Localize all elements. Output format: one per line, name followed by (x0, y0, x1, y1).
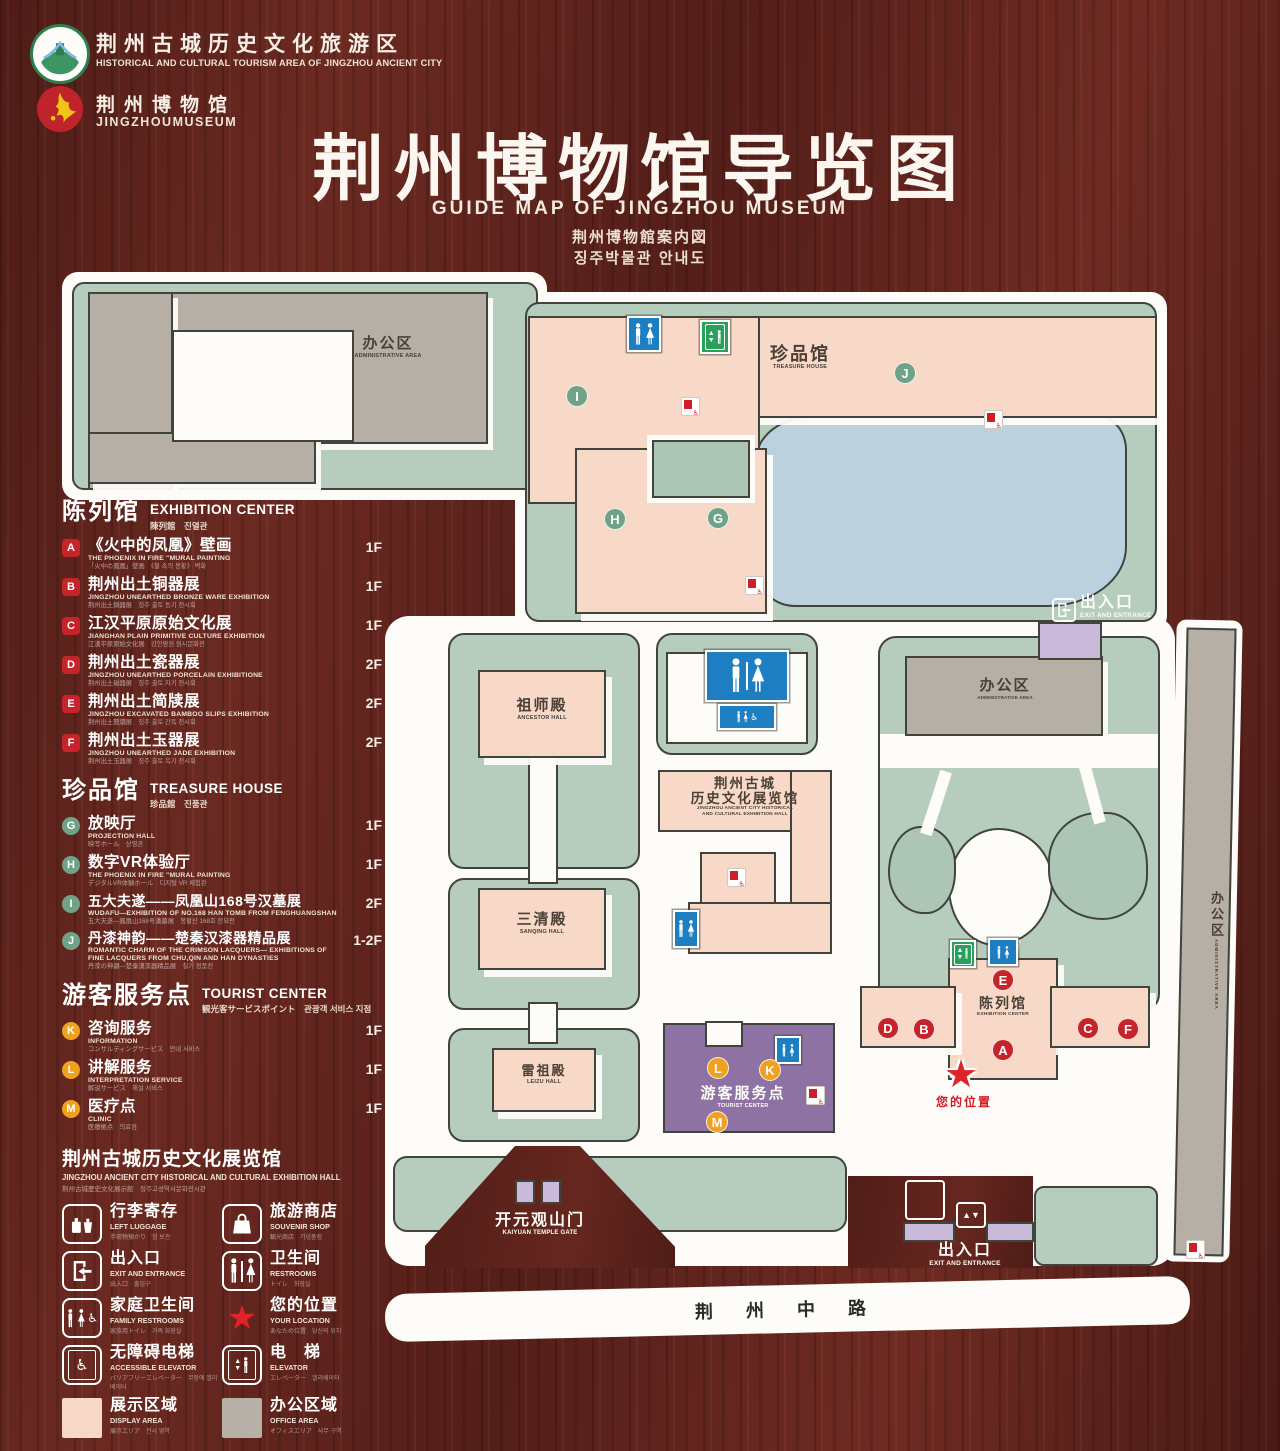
legend-item-K: K 咨询服务 INFORMATION コンサルティングサービス 안내 서비스 1… (62, 1021, 382, 1054)
garden-path-horizontal (880, 734, 1158, 768)
badge-K: K (62, 1022, 80, 1040)
your-location-icon: ★ (222, 1298, 262, 1338)
exit-north-label: 出入口 EXIT AND ENTRANCE (1080, 594, 1200, 619)
restroom-sign-central (705, 650, 789, 702)
map-marker-J: J (894, 362, 916, 384)
badge-C: C (62, 617, 80, 635)
section-tourist-center: 游客服务点 TOURIST CENTER 観光客サービスポイント 관광객 서비스… (62, 984, 382, 1016)
map-marker-C: C (1077, 1017, 1099, 1039)
tourism-logo-title: 荆州古城历史文化旅游区 (96, 28, 404, 58)
restroom-sign-hist-hall (673, 910, 699, 948)
your-location-label: 您的位置 (922, 1096, 1006, 1109)
floor-A: 1F (346, 538, 382, 555)
legend-item-J: J 丹漆神韵——楚秦汉漆器精品展 ROMANTIC CHARM OF THE C… (62, 931, 382, 970)
red-facility-icon-5 (806, 1086, 825, 1105)
exhibition-center-label: 陈列馆 EXHIBITION CENTER (950, 996, 1056, 1017)
floor-I: 2F (346, 894, 382, 911)
badge-E: E (62, 695, 80, 713)
admin-east-label: 办公区 ADMINISTRATIVE AREA (930, 678, 1080, 700)
badge-B: B (62, 578, 80, 596)
elevator-icon: ▲▼ (222, 1345, 262, 1385)
legend-item-E: E 荆州出土简牍展 JINGZHOU EXCAVATED BAMBOO SLIP… (62, 694, 382, 727)
souvenir-shop-icon (222, 1204, 262, 1244)
red-facility-icon-4 (727, 868, 746, 887)
map-marker-E: E (992, 969, 1014, 991)
restrooms-icon (222, 1251, 262, 1291)
red-facility-icon-2 (984, 410, 1003, 429)
map-marker-G: G (707, 507, 729, 529)
elevator-sign-treasure: ▲▼ (700, 320, 730, 354)
legend-exit-entrance: 出入口 EXIT AND ENTRANCE 出入口 출입구 (62, 1251, 222, 1291)
legend-souvenir-shop: 旅游商店 SOUVENIR SHOP 観光商店 기념품점 (222, 1204, 382, 1244)
floor-H: 1F (346, 855, 382, 872)
south-gate-pad-left (903, 1222, 955, 1242)
badge-G: G (62, 817, 80, 835)
badge-H: H (62, 856, 80, 874)
pond-green-right (1048, 812, 1148, 920)
road-label: 荆 州 中 路 (695, 1294, 881, 1324)
floor-C: 1F (346, 616, 382, 633)
floor-E: 2F (346, 694, 382, 711)
hist-hall-note: 荆州古城历史文化展览馆 JINGZHOU ANCIENT CITY HISTOR… (62, 1144, 382, 1193)
family-restroom-sign-central: ♿ (718, 704, 776, 730)
map-marker-L: L (707, 1057, 729, 1079)
tourist-center-label: 游客服务点 TOURIST CENTER (668, 1086, 818, 1109)
office-area-swatch (222, 1398, 262, 1438)
map-marker-F: F (1117, 1018, 1139, 1040)
floor-B: 1F (346, 577, 382, 594)
legend-item-A: A 《火中的凤凰》壁画 THE PHOENIX IN FIRE "MURAL P… (62, 538, 382, 571)
floor-L: 1F (346, 1060, 382, 1077)
elevator-sign-exhibition: ▲▼ (950, 940, 976, 968)
tourism-logo-subtitle: HISTORICAL AND CULTURAL TOURISM AREA OF … (96, 58, 442, 68)
section-exhibition-center: 陈列馆 EXHIBITION CENTER 陳列館 진열관 (62, 500, 382, 532)
green-inner-court (652, 440, 750, 498)
museum-logo-title: 荆州博物馆 (96, 90, 236, 117)
corridor-sanqing-leizu (528, 1002, 558, 1044)
hist-hall-label: 荆州古城 历史文化展览馆 JINGZHOU ANCIENT CITY HISTO… (662, 776, 828, 817)
legend-elevator: ▲▼ 电 梯 ELEVATOR エレベーター 엘리베이터 (222, 1345, 382, 1391)
badge-D: D (62, 656, 80, 674)
museum-logo-subtitle: JINGZHOUMUSEUM (96, 115, 237, 129)
badge-L: L (62, 1061, 80, 1079)
treasure-house-label: 珍品馆 TREASURE HOUSE (740, 344, 860, 370)
pond-green-left (888, 826, 956, 914)
road-jingzhou-middle: 荆 州 中 路 (385, 1276, 1191, 1342)
leizu-hall-label: 雷祖殿 LEIZU HALL (494, 1064, 594, 1085)
lake (755, 415, 1127, 607)
badge-I: I (62, 895, 80, 913)
left-luggage-icon-map (905, 1180, 945, 1220)
badge-J: J (62, 932, 80, 950)
map-marker-B: B (913, 1018, 935, 1040)
family-restrooms-icon: ♿ (62, 1298, 102, 1338)
display-area-swatch (62, 1398, 102, 1438)
badge-F: F (62, 734, 80, 752)
legend-left-luggage: 行李寄存 LEFT LUGGAGE 手荷物預かり 짐 보관 (62, 1204, 222, 1244)
building-exhibition-right-wing (1050, 986, 1150, 1048)
legend-family-restrooms: ♿ 家庭卫生间 FAMILY RESTROOMS 家族用トイレ 가족 화장실 (62, 1298, 222, 1338)
exit-icon-north (1052, 598, 1076, 622)
section-treasure-house: 珍品馆 TREASURE HOUSE 珍品館 진품관 (62, 779, 382, 811)
museum-logo (37, 86, 83, 132)
floor-F: 2F (346, 733, 382, 750)
accessible-elevator-icon: ♿ (62, 1345, 102, 1385)
restroom-sign-tourist (775, 1036, 801, 1064)
elevator-arrows-icon-map: ▲▼ (956, 1202, 986, 1228)
legend-office-area: 办公区域 OFFICE AREA オフィスエリア 사무 구역 (222, 1398, 382, 1438)
legend-item-C: C 江汉平原原始文化展 JIANGHAN PLAIN PRIMITIVE CUL… (62, 616, 382, 649)
legend-item-H: H 数字VR体验厅 THE PHOENIX IN FIRE "MURAL PAI… (62, 855, 382, 888)
floor-G: 1F (346, 816, 382, 833)
guide-map-sign: 荆州古城历史文化旅游区 HISTORICAL AND CULTURAL TOUR… (0, 0, 1280, 1451)
map-marker-A: A (992, 1039, 1014, 1061)
legend-item-G: G 放映厅 PROJECTION HALL 映写ホール 상영관 1F (62, 816, 382, 849)
legend-your-location: ★ 您的位置 YOUR LOCATION あなたの位置 당신의 위치 (222, 1298, 382, 1338)
legend-sidebar: 陈列馆 EXHIBITION CENTER 陳列館 진열관 A 《火中的凤凰》壁… (62, 500, 382, 1438)
map-marker-K: K (759, 1059, 781, 1081)
tourism-area-logo (30, 24, 90, 84)
red-facility-icon-6 (1186, 1240, 1205, 1259)
legend-accessible-elevator: ♿ 无障碍电梯 ACCESSIBLE ELEVATOR バリアフリーエレベーター… (62, 1345, 222, 1391)
building-exhibition-left-wing (860, 986, 956, 1048)
your-location-star: ★ (944, 1056, 978, 1094)
badge-A: A (62, 539, 80, 557)
admin-northwest-label: 办公区 ADMINISTRATIVE AREA (318, 336, 458, 359)
corridor-ancestor-sanqing (528, 752, 558, 884)
legend-item-D: D 荆州出土瓷器展 JINGZHOU UNEARTHED PORCELAIN E… (62, 655, 382, 688)
page-subtitle-ja: 荆州博物館案内図 (270, 226, 1010, 247)
legend-item-L: L 讲解服务 INTERPRETATION SERVICE 解説サービス 해설 … (62, 1060, 382, 1093)
tourist-center-notch (705, 1021, 743, 1047)
exit-entrance-icon (62, 1251, 102, 1291)
legend-item-F: F 荆州出土玉器展 JINGZHOU UNEARTHED JADE EXHIBI… (62, 733, 382, 766)
page-subtitle-ko: 징주박물관 안내도 (270, 247, 1010, 268)
restroom-sign-treasure (627, 316, 661, 352)
legend-item-B: B 荆州出土铜器展 JINGZHOU UNEARTHED BRONZE WARE… (62, 577, 382, 610)
ancestor-hall-label: 祖师殿 ANCESTOR HALL (482, 698, 602, 721)
page-subtitle-en: GUIDE MAP OF JINGZHOU MUSEUM (270, 198, 1010, 220)
north-gate-building (1038, 622, 1102, 660)
badge-M: M (62, 1100, 80, 1118)
floor-D: 2F (346, 655, 382, 672)
map-marker-I: I (566, 385, 588, 407)
floor-J: 1-2F (346, 931, 382, 948)
kaiyuan-gate-pillar-right (541, 1180, 561, 1204)
restroom-sign-exhibition (988, 938, 1018, 966)
building-hist-hall-bottom (688, 902, 832, 954)
legend-display-area: 展示区域 DISPLAY AREA 展示エリア 전시 영역 (62, 1398, 222, 1438)
kaiyuan-gate-pillar-left (515, 1180, 535, 1204)
map-marker-M: M (706, 1111, 728, 1133)
exit-south-label: 出入口 EXIT AND ENTRANCE (895, 1242, 1035, 1267)
floor-M: 1F (346, 1099, 382, 1116)
map-marker-H: H (604, 508, 626, 530)
red-facility-icon-3 (745, 576, 764, 595)
legend-restrooms: 卫生间 RESTROOMS トイレ 화장실 (222, 1251, 382, 1291)
sanqing-hall-label: 三清殿 SANQING HALL (482, 912, 602, 935)
legend-item-M: M 医疗点 CLINIC 医療拠点 의료점 1F (62, 1099, 382, 1132)
building-tourist-center (663, 1023, 835, 1133)
office-strip-label: 办公区ADMINISTRATIVE AREA (1186, 860, 1226, 1040)
left-luggage-icon (62, 1204, 102, 1244)
map-marker-D: D (877, 1017, 899, 1039)
green-area-bottom-right (1034, 1186, 1158, 1266)
floor-K: 1F (346, 1021, 382, 1038)
kaiyuan-gate-label: 开元观山门 KAIYUAN TEMPLE GATE (450, 1212, 630, 1237)
legend-item-I: I 五大夫遂——凤凰山168号汉墓展 WUDAFU—EXHIBITION OF … (62, 894, 382, 925)
south-gate-pad-right (986, 1222, 1034, 1242)
red-facility-icon-1 (681, 397, 700, 416)
